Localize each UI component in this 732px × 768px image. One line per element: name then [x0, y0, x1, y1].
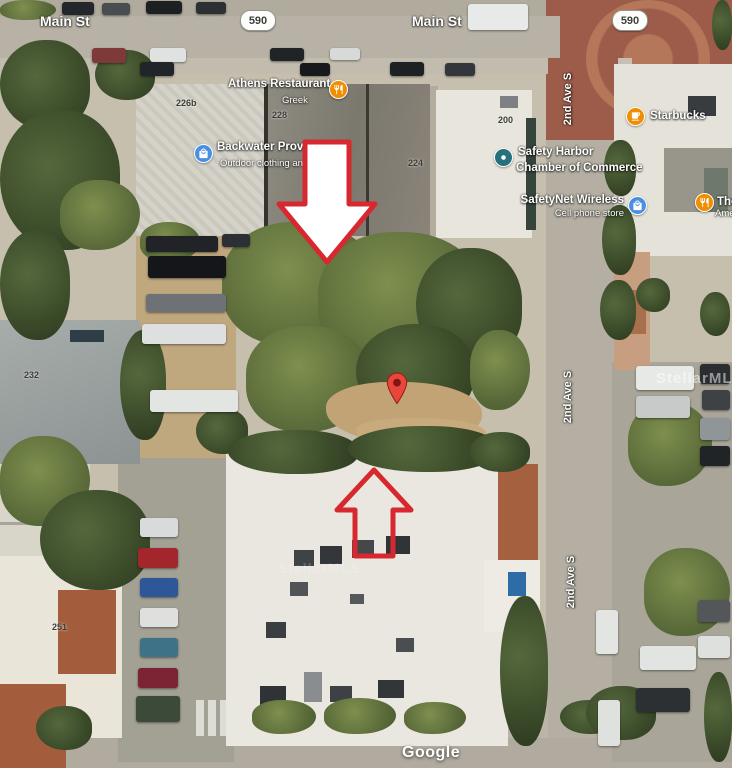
cafe-icon[interactable] [626, 107, 645, 126]
tree [0, 230, 70, 340]
car [138, 668, 178, 688]
pin-body [387, 373, 406, 404]
poi-truncated-subtitle: Ame [715, 208, 732, 219]
condo-shadow-trees [470, 432, 530, 472]
building-number-232: 232 [24, 370, 39, 380]
satellite-map-canvas[interactable]: Main St Main St 590 590 2nd Ave S 2nd Av… [0, 0, 732, 768]
road-label-main-st-west: Main St [40, 13, 90, 29]
poi-starbucks-name[interactable]: Starbucks [650, 110, 706, 122]
hvac-unit [350, 594, 364, 604]
restaurant-icon[interactable] [695, 193, 714, 212]
car [146, 294, 226, 312]
tree [712, 0, 732, 50]
tree [36, 706, 92, 750]
route-shield-text: 590 [621, 15, 639, 27]
car [598, 700, 620, 746]
hvac-unit [396, 638, 414, 652]
car [330, 48, 360, 60]
car [142, 324, 226, 344]
shopping-bag-icon[interactable] [194, 144, 213, 163]
car [270, 48, 304, 61]
route-shield-590-west: 590 [240, 10, 276, 31]
car [92, 48, 126, 63]
dumpster [136, 696, 180, 722]
building-number-224: 224 [408, 158, 423, 168]
poi-safetynet-subtitle: Cell phone store [520, 208, 624, 219]
car [102, 3, 130, 15]
car [700, 418, 730, 440]
car [146, 236, 218, 252]
stellar-mls-watermark-faint: StellarMLS [278, 560, 360, 576]
car [138, 548, 178, 568]
car [196, 2, 226, 14]
condo-wing-terracotta [498, 464, 538, 564]
rooftop-unit [500, 96, 518, 108]
building-number-228: 228 [272, 110, 287, 120]
car [640, 646, 696, 670]
car [300, 63, 330, 76]
car [140, 578, 178, 597]
building-number-226b: 226b [176, 98, 197, 108]
road-label-2nd-ave-mid: 2nd Ave S [562, 365, 574, 429]
building-number-251: 251 [52, 622, 67, 632]
hvac-unit [290, 582, 308, 596]
google-logo: Google [402, 744, 460, 762]
car [636, 396, 690, 418]
poi-safetynet-name[interactable]: SafetyNet Wireless [520, 194, 624, 206]
car [468, 4, 528, 30]
road-label-2nd-ave-north: 2nd Ave S [562, 67, 574, 131]
car [140, 608, 178, 627]
subject-building-arrow-up [334, 466, 414, 560]
car [148, 256, 226, 278]
pin-core [393, 379, 401, 387]
building-number-200: 200 [498, 115, 513, 125]
road-label-2nd-ave-south: 2nd Ave S [565, 550, 577, 614]
hvac-unit [266, 622, 286, 638]
street-tree [600, 280, 636, 340]
tree [704, 672, 732, 762]
poi-athens-name[interactable]: Athens Restaurant [228, 78, 330, 90]
car [140, 518, 178, 537]
car [700, 446, 730, 466]
tree [500, 596, 548, 746]
shopping-bag-icon[interactable] [628, 196, 647, 215]
tree [40, 490, 150, 590]
tree [700, 292, 730, 336]
lot-tree-canopy [470, 330, 530, 410]
civic-icon[interactable] [494, 148, 513, 167]
subject-lot-arrow-down [276, 138, 378, 266]
road-label-main-st-east: Main St [412, 13, 462, 29]
location-pin[interactable] [385, 372, 409, 405]
poi-truncated-name[interactable]: The [717, 196, 732, 208]
building-251-terracotta [58, 590, 116, 674]
car [698, 600, 730, 622]
car [146, 1, 182, 14]
crosswalk-stripe [220, 700, 228, 736]
crosswalk-stripe [232, 700, 240, 736]
car [636, 688, 690, 712]
poi-chamber-name-line1[interactable]: Safety Harbor [518, 146, 593, 158]
hvac-unit [304, 672, 322, 702]
route-shield-text: 590 [249, 15, 267, 27]
restaurant-icon[interactable] [329, 80, 348, 99]
crosswalk-stripe [196, 700, 204, 736]
stellar-mls-watermark: StellarMLS [656, 370, 732, 387]
house-232-panel [70, 330, 104, 342]
patio-umbrella [636, 278, 670, 312]
poi-chamber-name-line2[interactable]: Chamber of Commerce [516, 162, 643, 174]
car [596, 610, 618, 654]
hvac-unit [378, 680, 404, 698]
car [140, 638, 178, 657]
car [445, 63, 475, 76]
car [698, 636, 730, 658]
route-shield-590-east: 590 [612, 10, 648, 31]
poi-athens-subtitle: Greek [282, 95, 308, 106]
car [140, 62, 174, 76]
car [150, 48, 186, 62]
crosswalk-stripe [208, 700, 216, 736]
car [390, 62, 424, 76]
car [702, 390, 730, 410]
condo-blue-feature [508, 572, 526, 596]
tree [60, 180, 140, 250]
car [150, 390, 238, 412]
tree [120, 330, 166, 440]
car [222, 234, 250, 247]
